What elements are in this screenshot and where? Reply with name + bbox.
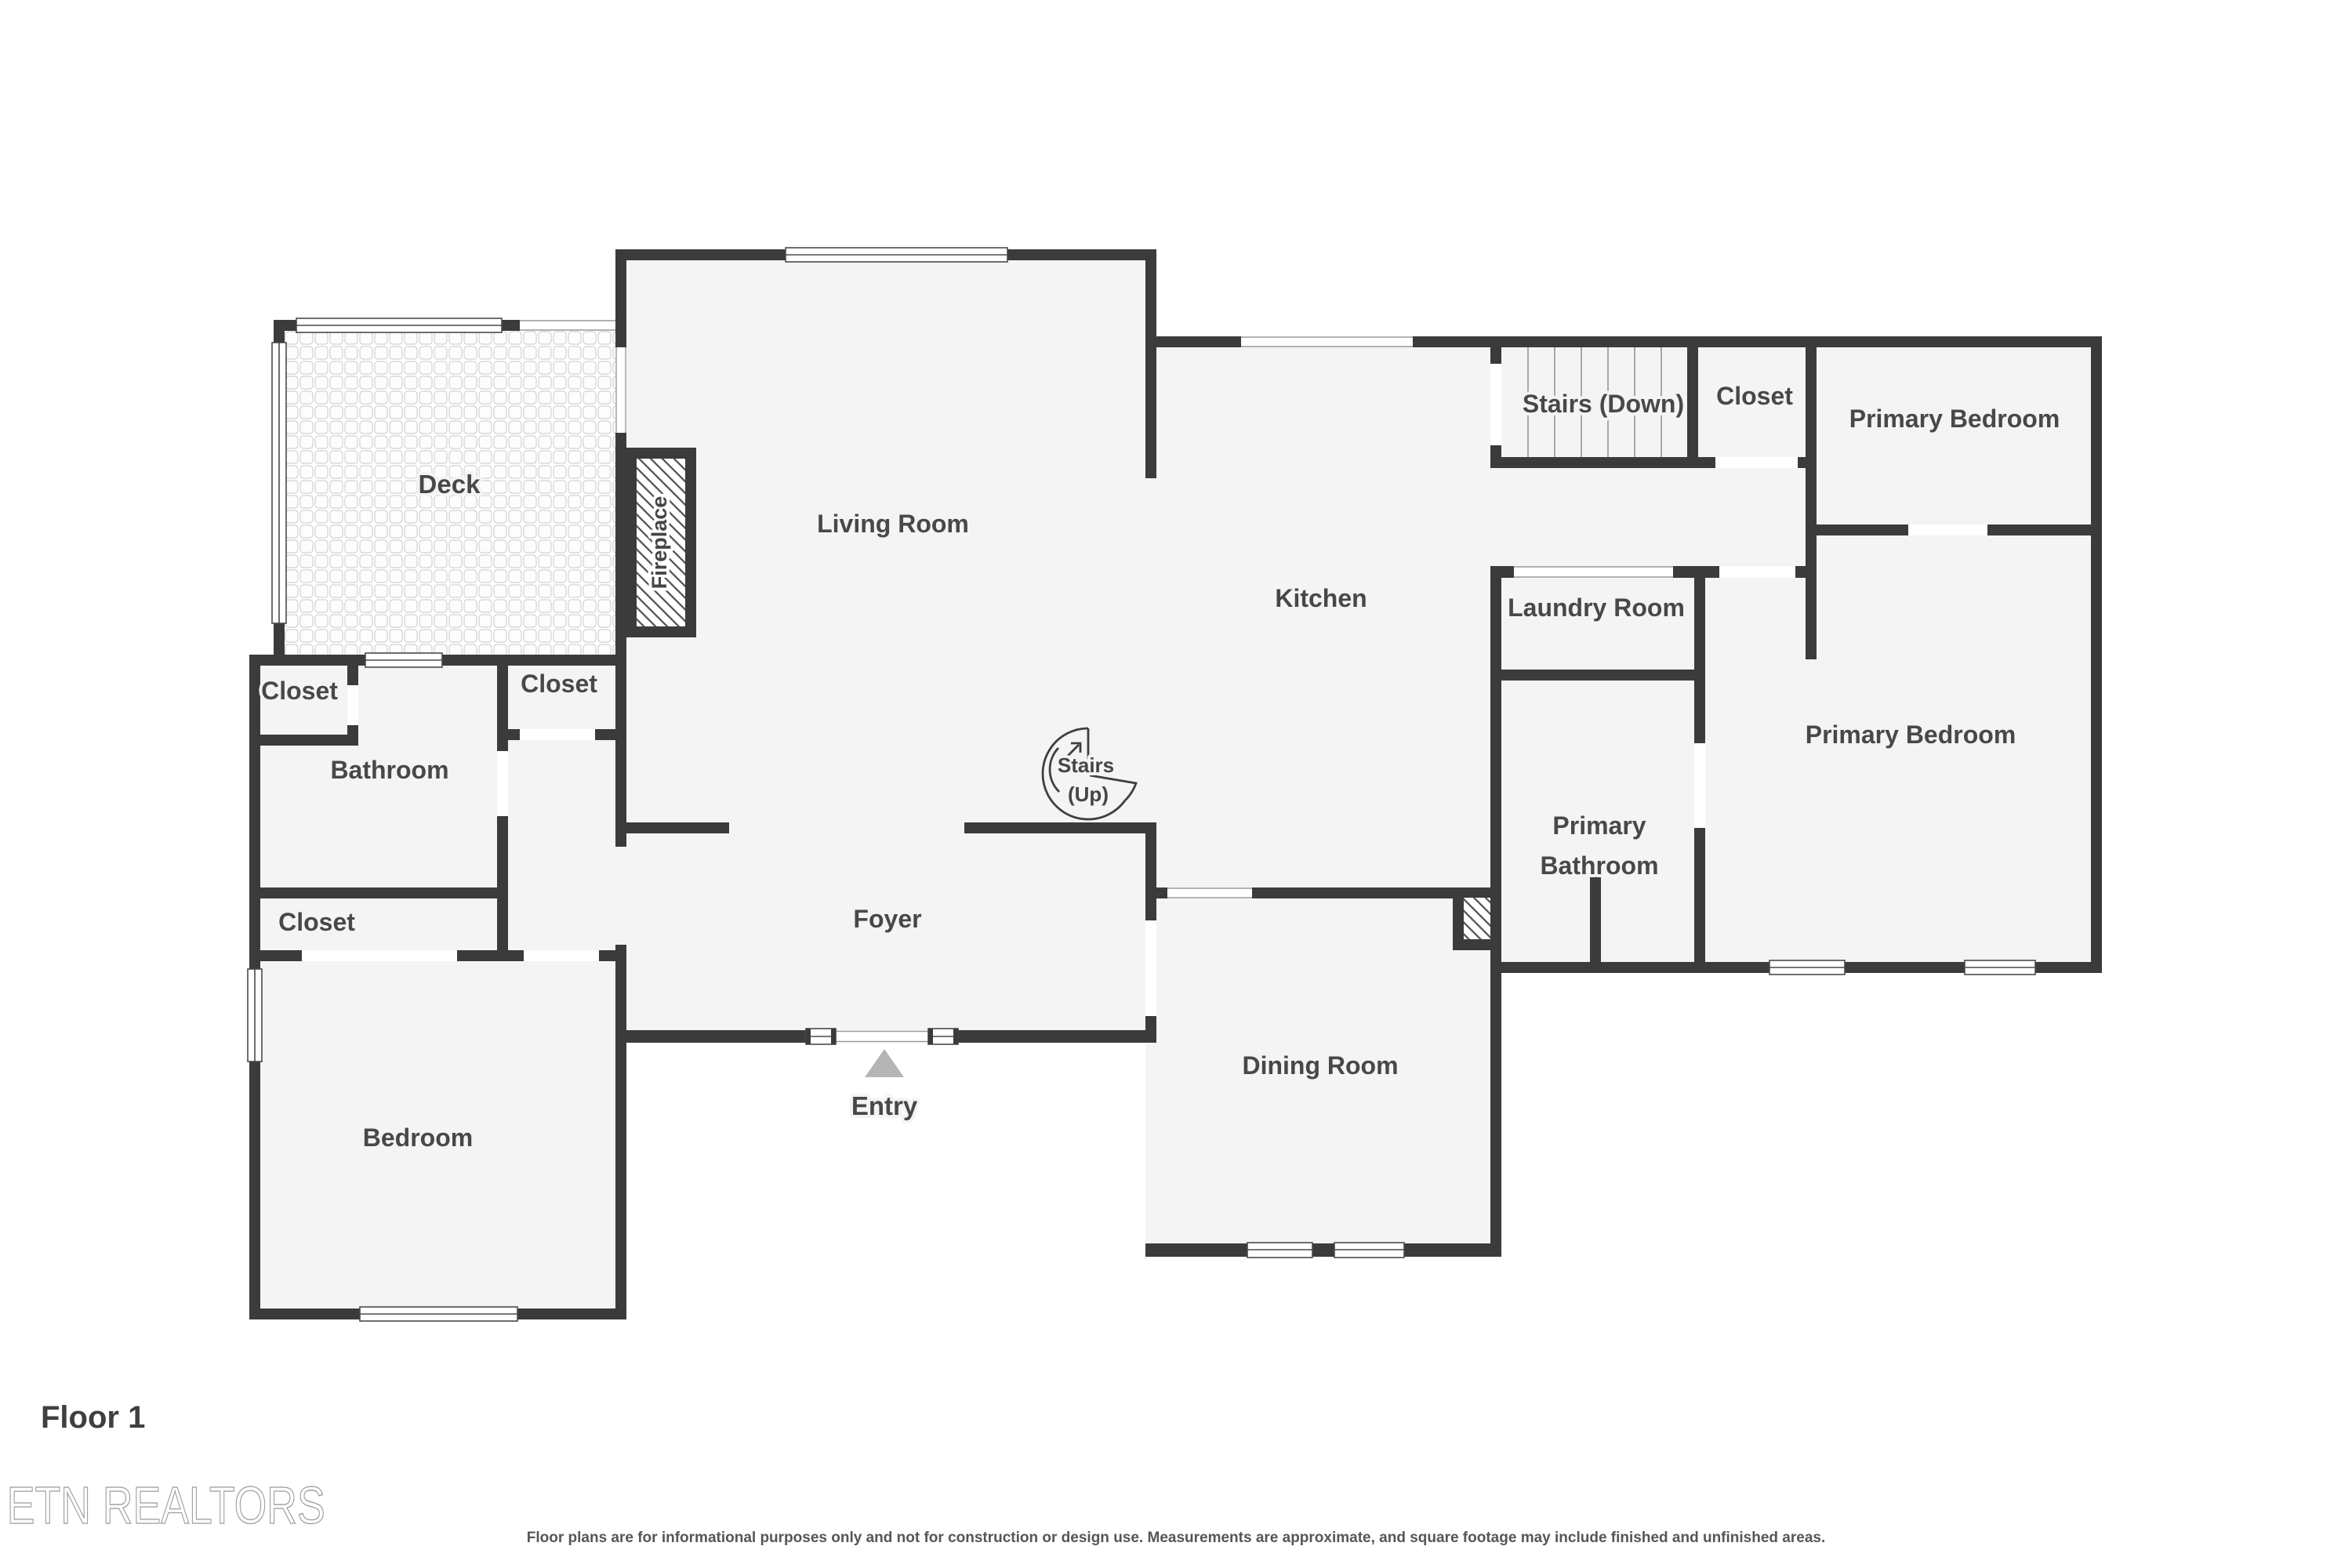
svg-text:Closet: Closet xyxy=(1716,382,1793,410)
svg-text:Stairs (Down): Stairs (Down) xyxy=(1523,390,1684,418)
svg-text:Kitchen: Kitchen xyxy=(1275,584,1367,612)
svg-text:Primary Bedroom: Primary Bedroom xyxy=(1849,405,2060,433)
svg-text:Deck: Deck xyxy=(419,470,481,499)
svg-text:Closet: Closet xyxy=(278,908,355,936)
svg-text:Floor plans are for informatio: Floor plans are for informational purpos… xyxy=(527,1530,1825,1546)
svg-text:Fireplace: Fireplace xyxy=(648,496,671,590)
svg-text:Closet: Closet xyxy=(521,670,597,698)
svg-text:Entry: Entry xyxy=(851,1091,918,1120)
svg-text:Floor 1: Floor 1 xyxy=(41,1400,145,1435)
svg-text:Living Room: Living Room xyxy=(817,510,969,538)
svg-text:Dining Room: Dining Room xyxy=(1242,1051,1398,1080)
svg-text:(Up): (Up) xyxy=(1068,782,1109,806)
svg-text:Laundry Room: Laundry Room xyxy=(1508,593,1685,622)
svg-text:Stairs: Stairs xyxy=(1058,753,1114,777)
svg-text:Bedroom: Bedroom xyxy=(363,1123,473,1152)
svg-text:Bathroom: Bathroom xyxy=(1540,851,1658,880)
svg-text:Closet: Closet xyxy=(261,677,338,705)
svg-text:Primary: Primary xyxy=(1552,811,1646,840)
svg-text:Foyer: Foyer xyxy=(853,905,921,933)
svg-text:ETN REALTORS: ETN REALTORS xyxy=(7,1475,325,1534)
svg-text:Bathroom: Bathroom xyxy=(330,756,448,784)
svg-text:Primary Bedroom: Primary Bedroom xyxy=(1806,720,2016,749)
